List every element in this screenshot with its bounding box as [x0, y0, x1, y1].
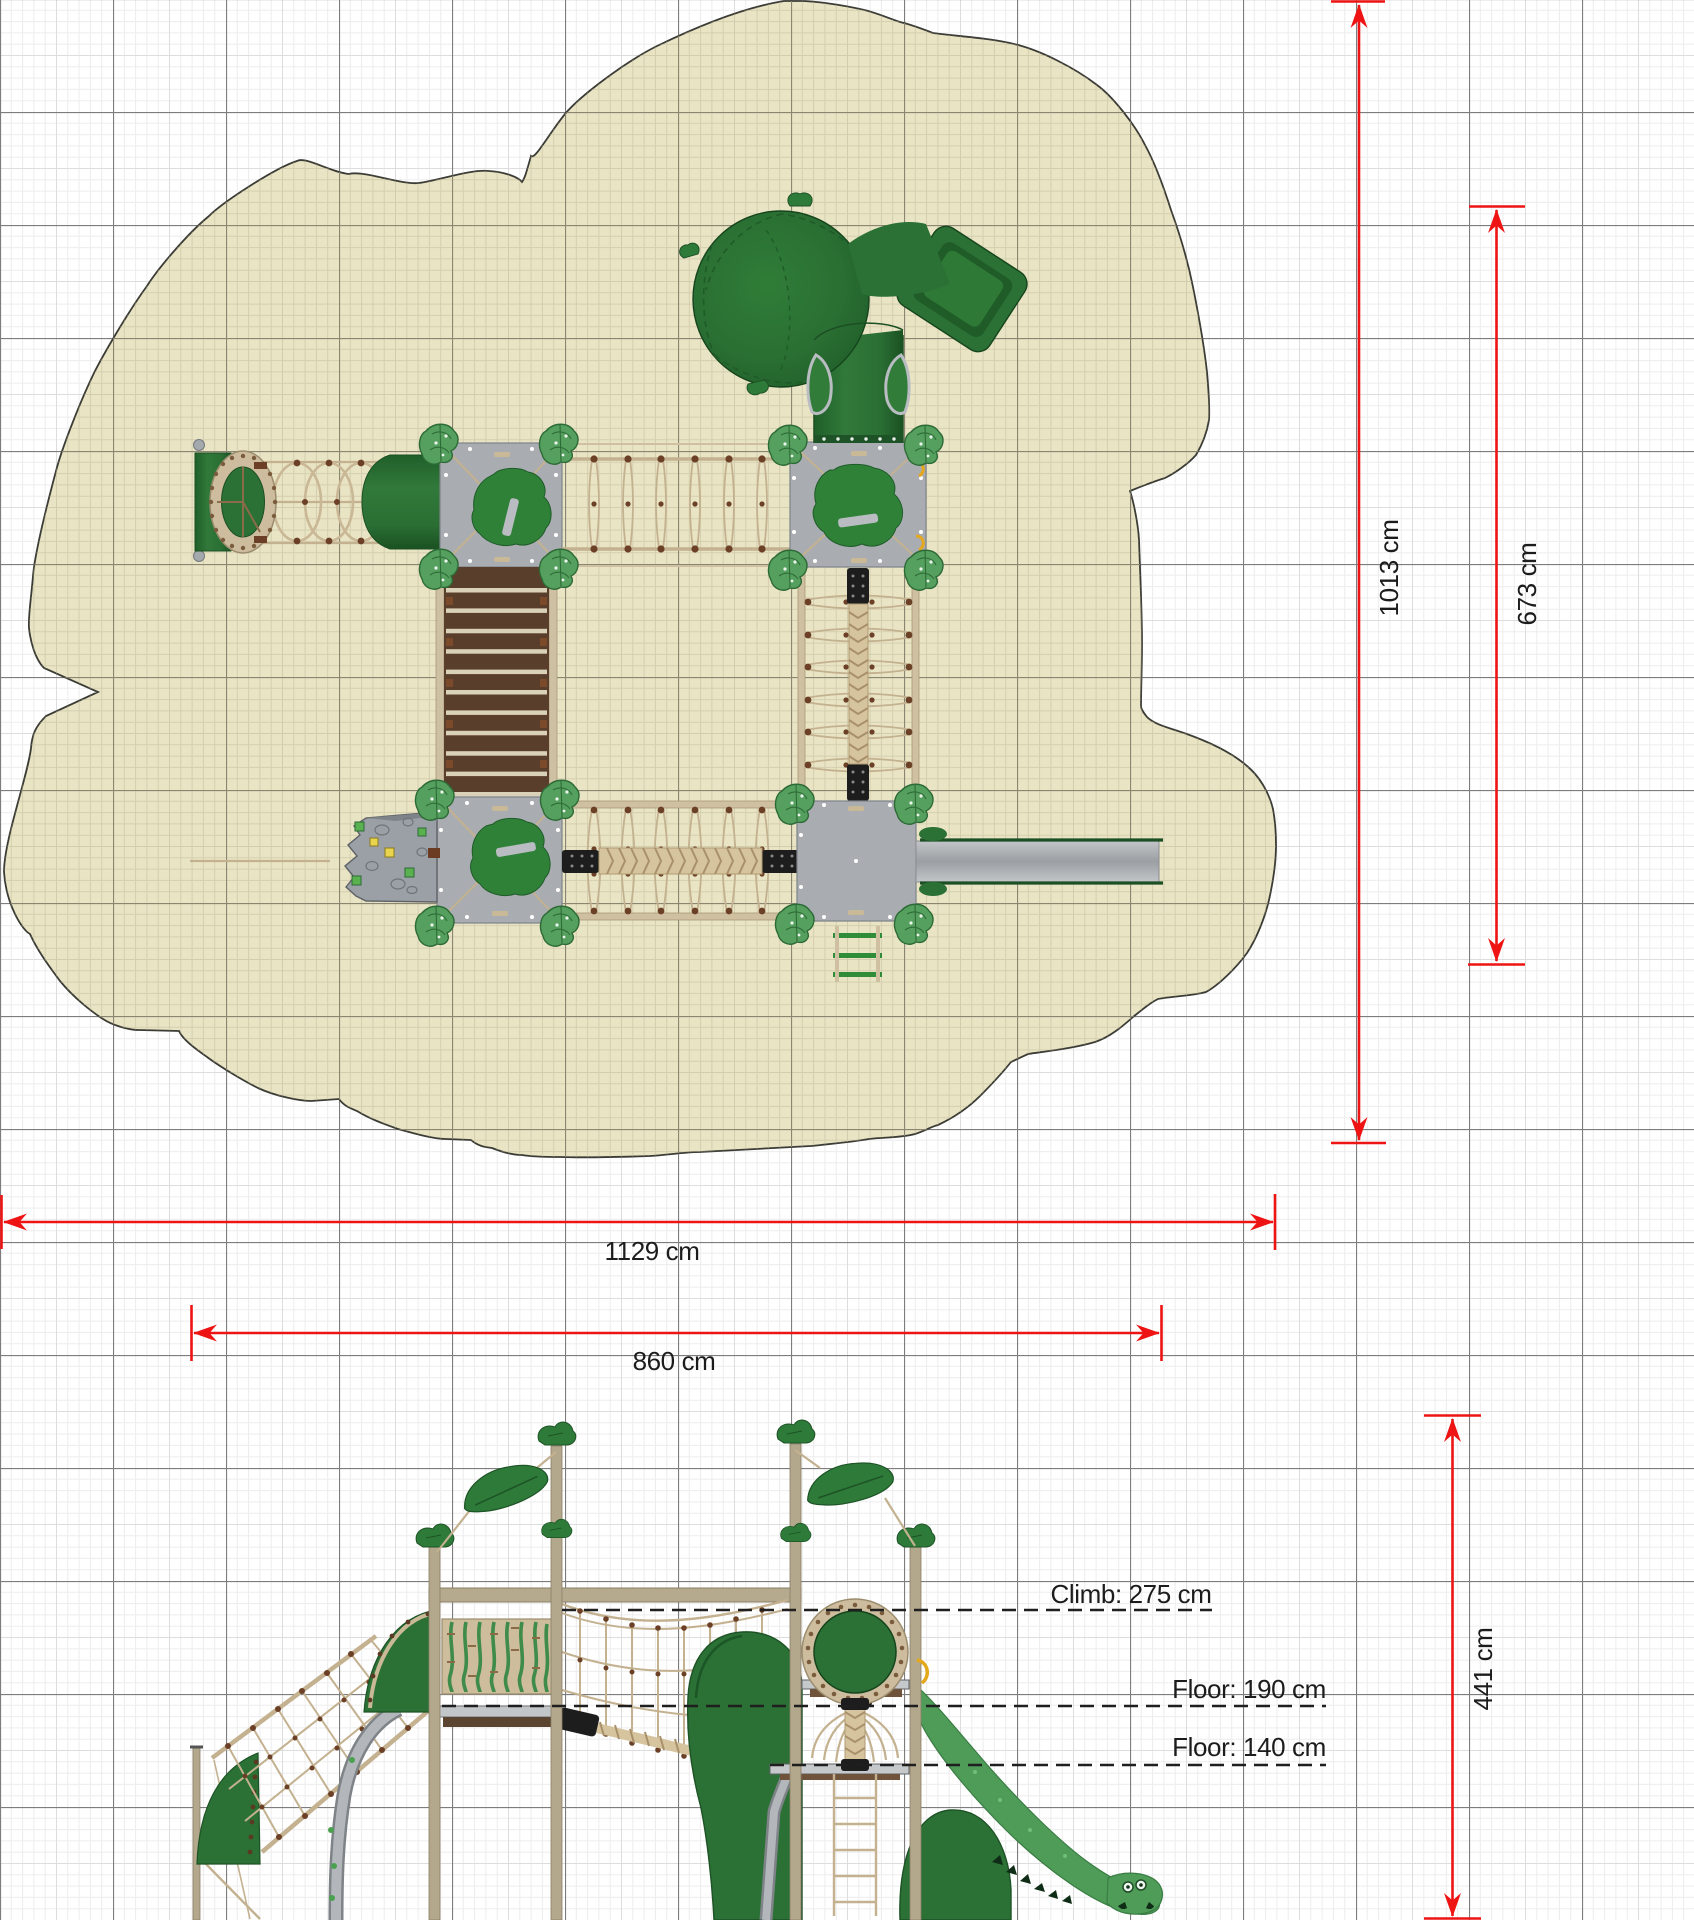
svg-text:441 cm: 441 cm	[1468, 1628, 1498, 1711]
svg-text:Climb: 275 cm: Climb: 275 cm	[1051, 1579, 1212, 1609]
svg-text:1129 cm: 1129 cm	[605, 1236, 700, 1266]
svg-text:1013 cm: 1013 cm	[1374, 520, 1404, 617]
svg-text:Floor: 140 cm: Floor: 140 cm	[1172, 1732, 1326, 1762]
svg-text:Floor: 190 cm: Floor: 190 cm	[1172, 1674, 1326, 1704]
svg-text:860 cm: 860 cm	[633, 1346, 716, 1376]
svg-text:673 cm: 673 cm	[1512, 543, 1542, 626]
